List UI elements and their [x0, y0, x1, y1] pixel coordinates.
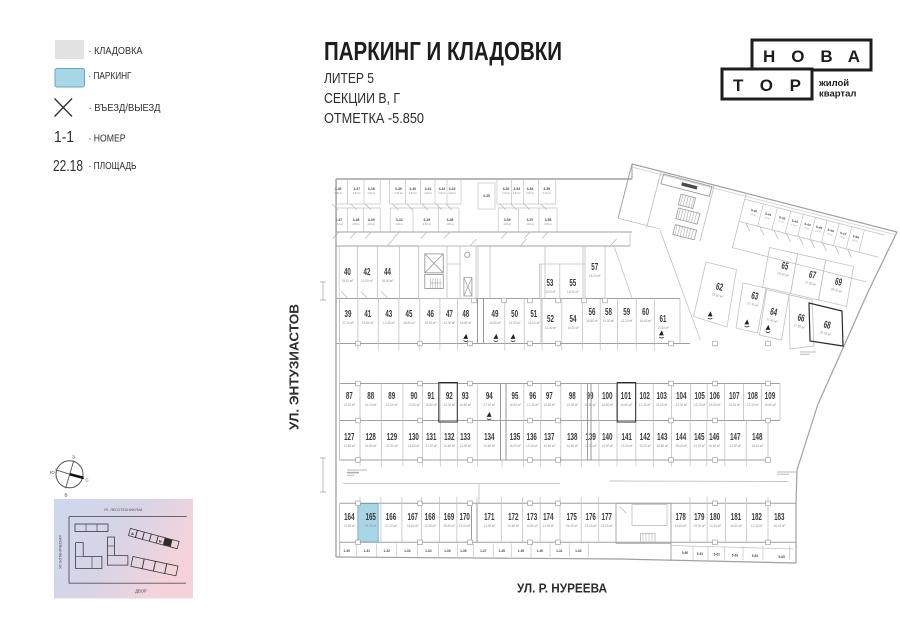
svg-text:15.00 м²: 15.00 м²	[509, 444, 521, 448]
svg-text:3-48: 3-48	[353, 218, 360, 222]
svg-text:1-1: 1-1	[54, 129, 74, 146]
svg-text:180: 180	[710, 512, 721, 523]
svg-text:130: 130	[409, 432, 420, 443]
svg-text:13.30 м²: 13.30 м²	[444, 403, 456, 407]
svg-text:107: 107	[729, 391, 740, 402]
svg-text:52: 52	[547, 314, 554, 325]
svg-text:94: 94	[486, 391, 493, 402]
svg-text:13.30 м²: 13.30 м²	[657, 326, 669, 330]
svg-text:1-33: 1-33	[404, 549, 411, 553]
svg-text:16.80 м²: 16.80 м²	[484, 444, 496, 448]
svg-text:48: 48	[462, 309, 469, 320]
svg-text:128: 128	[366, 432, 377, 443]
svg-text:13.30 м²: 13.30 м²	[730, 444, 742, 448]
svg-text:100: 100	[602, 391, 613, 402]
svg-text:5-63: 5-63	[732, 553, 739, 557]
svg-text:УЛ. Р. НУРЕЕВА: УЛ. Р. НУРЕЕВА	[517, 582, 607, 596]
svg-text:3-55: 3-55	[543, 187, 550, 191]
svg-text:21.00 м²: 21.00 м²	[361, 279, 373, 283]
svg-text:105: 105	[695, 391, 706, 402]
svg-text:15.00 м²: 15.00 м²	[459, 524, 471, 528]
svg-text:4.00 м²: 4.00 м²	[409, 192, 417, 195]
svg-text:39: 39	[345, 309, 352, 320]
svg-text:1-34: 1-34	[425, 549, 432, 553]
svg-text:165: 165	[366, 512, 377, 523]
svg-text:16.80 м²: 16.80 м²	[730, 524, 742, 528]
svg-text:14.80 м²: 14.80 м²	[620, 403, 632, 407]
svg-text:13.50 м²: 13.50 м²	[344, 444, 356, 448]
svg-text:87: 87	[346, 391, 353, 402]
svg-text:16.80 м²: 16.80 м²	[602, 403, 614, 407]
svg-text:3-43: 3-43	[449, 187, 456, 191]
svg-text:177: 177	[602, 512, 613, 523]
svg-text:5-61: 5-61	[697, 552, 704, 556]
svg-text:А: А	[131, 531, 134, 536]
svg-text:102: 102	[640, 391, 651, 402]
svg-text:3-53: 3-53	[513, 187, 520, 191]
svg-text:183: 183	[774, 512, 785, 523]
svg-text:103: 103	[657, 391, 668, 402]
svg-text:16.80 м²: 16.80 м²	[544, 403, 556, 407]
svg-text:13.30 м²: 13.30 м²	[639, 403, 651, 407]
svg-text:167: 167	[408, 512, 419, 523]
svg-text:3-39: 3-39	[395, 187, 402, 191]
svg-text:16.10 м²: 16.10 м²	[752, 444, 764, 448]
svg-text:15.00 м²: 15.00 м²	[386, 403, 398, 407]
svg-text:15.20 м²: 15.20 м²	[567, 326, 579, 330]
svg-text:16.80 м²: 16.80 м²	[544, 444, 556, 448]
svg-text:· КЛАДОВКА: · КЛАДОВКА	[89, 45, 143, 57]
svg-text:13.30 м²: 13.30 м²	[751, 524, 763, 528]
svg-text:13.30 м²: 13.30 м²	[585, 524, 597, 528]
svg-text:13.30 м²: 13.30 м²	[747, 403, 759, 407]
svg-text:166: 166	[386, 512, 397, 523]
svg-text:· ПЛОЩАДЬ: · ПЛОЩАДЬ	[89, 160, 137, 172]
svg-text:Ю: Ю	[50, 470, 55, 475]
svg-text:88: 88	[367, 391, 374, 402]
svg-text:4.00 м²: 4.00 м²	[353, 192, 361, 195]
svg-text:169: 169	[444, 512, 455, 523]
svg-text:14.80 м²: 14.80 м²	[567, 444, 579, 448]
svg-text:ПАРКИНГ И КЛАДОВКИ: ПАРКИНГ И КЛАДОВКИ	[324, 36, 562, 66]
svg-text:15.00 м²: 15.00 м²	[729, 403, 741, 407]
svg-text:93: 93	[462, 391, 469, 402]
svg-text:4.00 м²: 4.00 м²	[367, 223, 375, 226]
svg-text:27.20 м²: 27.20 м²	[342, 321, 354, 325]
svg-text:134: 134	[484, 432, 495, 443]
svg-text:143: 143	[657, 432, 668, 443]
svg-text:З: З	[72, 455, 75, 460]
svg-text:4.00 м²: 4.00 м²	[367, 192, 375, 195]
svg-text:15.00 м²: 15.00 м²	[528, 321, 540, 325]
svg-text:140: 140	[602, 432, 613, 443]
svg-text:89: 89	[388, 391, 395, 402]
svg-text:174: 174	[543, 512, 554, 523]
svg-text:172: 172	[508, 512, 519, 523]
svg-text:4.00 м²: 4.00 м²	[424, 192, 432, 195]
svg-text:51: 51	[530, 309, 537, 320]
svg-text:16.80 м²: 16.80 м²	[443, 524, 455, 528]
svg-text:56: 56	[589, 307, 596, 318]
svg-text:92: 92	[446, 391, 453, 402]
svg-text:15.20 м²: 15.20 м²	[601, 524, 613, 528]
svg-text:1-38: 1-38	[499, 549, 506, 553]
svg-text:13.30 м²: 13.30 м²	[383, 321, 395, 325]
svg-text:15.20 м²: 15.20 м²	[694, 403, 706, 407]
svg-text:45: 45	[406, 309, 413, 320]
svg-text:16.10 м²: 16.10 м²	[774, 524, 786, 528]
svg-text:131: 131	[426, 432, 437, 443]
svg-text:127: 127	[344, 432, 355, 443]
svg-text:49: 49	[492, 309, 499, 320]
svg-text:168: 168	[425, 512, 436, 523]
svg-text:4.00 м²: 4.00 м²	[446, 223, 454, 226]
svg-text:16.80 м²: 16.80 м²	[640, 319, 652, 323]
svg-text:УЛ. БОТАНИЧЕСКАЯ: УЛ. БОТАНИЧЕСКАЯ	[59, 535, 63, 569]
svg-text:3-38: 3-38	[368, 187, 375, 191]
svg-text:175: 175	[567, 512, 578, 523]
svg-text:жилой: жилой	[818, 78, 849, 89]
svg-text:106: 106	[710, 391, 721, 402]
svg-text:14.80 м²: 14.80 м²	[526, 524, 538, 528]
svg-text:14.80 м²: 14.80 м²	[489, 321, 501, 325]
svg-text:15.00 м²: 15.00 м²	[694, 524, 706, 528]
svg-text:176: 176	[586, 512, 597, 523]
svg-text:ДВОР: ДВОР	[135, 589, 147, 594]
svg-text:1-40: 1-40	[537, 549, 544, 553]
svg-text:18.00 м²: 18.00 м²	[589, 274, 601, 278]
svg-text:54: 54	[570, 314, 577, 325]
svg-text:4.00 м²: 4.00 м²	[526, 223, 534, 226]
svg-text:136: 136	[527, 432, 538, 443]
svg-text:13.50 м²: 13.50 м²	[408, 403, 420, 407]
svg-text:13.30 м²: 13.30 м²	[543, 524, 555, 528]
svg-text:4.00 м²: 4.00 м²	[502, 192, 510, 195]
svg-text:18.10 м²: 18.10 м²	[342, 279, 354, 283]
svg-text:15.00 м²: 15.00 м²	[567, 290, 579, 294]
svg-text:1-30: 1-30	[344, 549, 351, 553]
svg-text:15.00 м²: 15.00 м²	[567, 403, 579, 407]
svg-text:4.00 м²: 4.00 м²	[526, 192, 534, 195]
svg-text:13.30 м²: 13.30 м²	[424, 524, 436, 528]
svg-text:16.80 м²: 16.80 м²	[460, 321, 472, 325]
svg-text:15.00 м²: 15.00 м²	[675, 444, 687, 448]
svg-text:16.80 м²: 16.80 м²	[764, 403, 776, 407]
svg-text:148: 148	[752, 432, 763, 443]
svg-text:16.80 м²: 16.80 м²	[403, 321, 415, 325]
svg-text:5-62: 5-62	[714, 553, 721, 557]
svg-text:109: 109	[765, 391, 776, 402]
svg-text:108: 108	[748, 391, 759, 402]
svg-text:101: 101	[621, 391, 632, 402]
svg-text:133: 133	[460, 432, 471, 443]
svg-text:16.80 м²: 16.80 м²	[365, 444, 377, 448]
svg-text:1-31: 1-31	[364, 549, 371, 553]
svg-text:3-35: 3-35	[483, 194, 490, 198]
svg-text:91: 91	[428, 391, 435, 402]
svg-text:96: 96	[529, 391, 536, 402]
svg-text:3-58: 3-58	[545, 218, 552, 222]
svg-text:13.30 м²: 13.30 м²	[694, 444, 706, 448]
svg-text:16.80 м²: 16.80 м²	[508, 524, 520, 528]
svg-text:· НОМЕР: · НОМЕР	[89, 133, 126, 145]
svg-text:145: 145	[694, 432, 705, 443]
svg-text:3-45: 3-45	[423, 218, 430, 222]
svg-text:13.30 м²: 13.30 м²	[344, 524, 356, 528]
svg-text:181: 181	[731, 512, 742, 523]
svg-text:61: 61	[660, 314, 667, 325]
svg-text:98: 98	[569, 391, 576, 402]
svg-text:137: 137	[544, 432, 555, 443]
svg-text:13.30 м²: 13.30 м²	[444, 321, 456, 325]
svg-text:129: 129	[387, 432, 398, 443]
svg-text:3-42: 3-42	[439, 187, 446, 191]
svg-text:27.20 м²: 27.20 м²	[426, 444, 438, 448]
svg-text:40: 40	[344, 267, 351, 278]
svg-text:3-41: 3-41	[425, 187, 432, 191]
svg-text:13.30 м²: 13.30 м²	[584, 403, 596, 407]
svg-text:146: 146	[709, 432, 720, 443]
svg-text:С: С	[85, 478, 88, 483]
svg-text:4.00 м²: 4.00 м²	[438, 192, 446, 195]
svg-text:1-39: 1-39	[518, 549, 525, 553]
svg-text:квартал: квартал	[819, 89, 856, 100]
svg-text:· ПАРКИНГ: · ПАРКИНГ	[89, 70, 132, 82]
svg-text:5-60: 5-60	[682, 551, 689, 555]
svg-text:13.30 м²: 13.30 м²	[484, 524, 496, 528]
svg-text:1-36: 1-36	[460, 549, 467, 553]
svg-text:173: 173	[527, 512, 538, 523]
svg-text:16.80 м²: 16.80 м²	[675, 524, 687, 528]
svg-text:15.00 м²: 15.00 м²	[425, 321, 437, 325]
svg-text:90: 90	[411, 391, 418, 402]
svg-text:95: 95	[512, 391, 519, 402]
svg-text:3-57: 3-57	[527, 218, 534, 222]
svg-text:Б: Б	[159, 538, 162, 543]
svg-text:4.00 м²: 4.00 м²	[503, 223, 511, 226]
svg-text:178: 178	[676, 512, 687, 523]
svg-text:4.00 м²: 4.00 м²	[334, 192, 342, 195]
svg-text:3-54: 3-54	[527, 187, 534, 191]
svg-text:3-37: 3-37	[353, 187, 360, 191]
svg-text:16.80 м²: 16.80 м²	[709, 444, 721, 448]
svg-text:15.00 м²: 15.00 м²	[566, 524, 578, 528]
svg-text:182: 182	[752, 512, 763, 523]
svg-text:16.80 м²: 16.80 м²	[444, 444, 456, 448]
svg-text:16.80 м²: 16.80 м²	[425, 403, 437, 407]
svg-text:97: 97	[546, 391, 553, 402]
svg-text:4.00 м²: 4.00 м²	[395, 223, 403, 226]
svg-text:13.30 м²: 13.30 м²	[621, 319, 633, 323]
svg-text:3-56: 3-56	[504, 218, 511, 222]
svg-text:144: 144	[676, 432, 687, 443]
svg-text:43: 43	[385, 309, 392, 320]
svg-text:· ВЪЕЗД/ВЫЕЗД: · ВЪЕЗД/ВЫЕЗД	[89, 102, 161, 114]
svg-text:4.00 м²: 4.00 м²	[544, 223, 552, 226]
svg-text:1-42: 1-42	[575, 549, 582, 553]
svg-text:147: 147	[730, 432, 741, 443]
svg-text:3-49: 3-49	[368, 218, 375, 222]
svg-text:16.80 м²: 16.80 м²	[657, 444, 669, 448]
svg-text:1-35: 1-35	[444, 549, 451, 553]
svg-text:60: 60	[642, 307, 649, 318]
svg-text:18.30 м²: 18.30 м²	[365, 524, 377, 528]
svg-text:4.00 м²: 4.00 м²	[543, 192, 551, 195]
svg-text:1-41: 1-41	[556, 549, 563, 553]
svg-text:УЛ. ЛЕСОТЕХНИКУМА: УЛ. ЛЕСОТЕХНИКУМА	[104, 508, 143, 512]
svg-text:3-44: 3-44	[396, 218, 403, 222]
svg-text:13.30 м²: 13.30 м²	[545, 326, 557, 330]
svg-text:16.80 м²: 16.80 м²	[408, 444, 420, 448]
svg-text:3-52: 3-52	[503, 187, 510, 191]
svg-text:16.80 м²: 16.80 м²	[509, 403, 521, 407]
svg-text:53: 53	[546, 278, 553, 289]
svg-text:57: 57	[591, 262, 598, 273]
svg-text:59: 59	[623, 307, 630, 318]
svg-text:22.18: 22.18	[53, 158, 83, 175]
svg-text:УЛ. ЭНТУЗИАСТОВ: УЛ. ЭНТУЗИАСТОВ	[288, 304, 302, 430]
svg-text:13.30 м²: 13.30 м²	[526, 444, 538, 448]
svg-text:13.30 м²: 13.30 м²	[621, 444, 633, 448]
svg-text:47: 47	[446, 309, 453, 320]
svg-text:142: 142	[640, 432, 651, 443]
svg-text:13.30 м²: 13.30 м²	[460, 444, 472, 448]
svg-text:13.30 м²: 13.30 м²	[676, 403, 688, 407]
svg-text:15.20 м²: 15.20 м²	[639, 444, 651, 448]
svg-text:4.00 м²: 4.00 м²	[352, 223, 360, 226]
svg-text:171: 171	[484, 512, 495, 523]
svg-text:44: 44	[384, 267, 391, 278]
svg-text:В: В	[65, 493, 68, 498]
svg-text:170: 170	[460, 512, 471, 523]
svg-text:СЕКЦИИ В, Г: СЕКЦИИ В, Г	[324, 90, 400, 107]
svg-text:16.80 м²: 16.80 м²	[709, 403, 721, 407]
svg-text:138: 138	[567, 432, 578, 443]
svg-text:104: 104	[676, 391, 687, 402]
svg-text:13.30 м²: 13.30 м²	[709, 524, 721, 528]
svg-text:132: 132	[444, 432, 455, 443]
svg-text:5-65: 5-65	[779, 555, 786, 559]
svg-text:15.00 м²: 15.00 м²	[603, 319, 615, 323]
svg-text:ОТМЕТКА -5.850: ОТМЕТКА -5.850	[324, 110, 424, 127]
svg-text:135: 135	[510, 432, 521, 443]
svg-text:41: 41	[364, 309, 371, 320]
svg-text:5-64: 5-64	[752, 554, 759, 558]
svg-text:55: 55	[569, 278, 576, 289]
svg-text:3-46: 3-46	[447, 218, 454, 222]
svg-text:58: 58	[605, 307, 612, 318]
svg-text:27.20 м²: 27.20 м²	[385, 524, 397, 528]
svg-text:18.60 м²: 18.60 м²	[382, 279, 394, 283]
svg-text:4.00 м²: 4.00 м²	[513, 192, 521, 195]
svg-text:ЛИТЕР 5: ЛИТЕР 5	[324, 70, 374, 87]
svg-text:16.80 м²: 16.80 м²	[586, 319, 598, 323]
svg-text:164: 164	[344, 512, 355, 523]
svg-text:16.80 м²: 16.80 м²	[407, 524, 419, 528]
svg-text:1-37: 1-37	[480, 549, 487, 553]
svg-text:15.00 м²: 15.00 м²	[544, 290, 556, 294]
svg-text:50: 50	[511, 309, 518, 320]
svg-text:141: 141	[622, 432, 633, 443]
svg-text:27.20 м²: 27.20 м²	[484, 403, 496, 407]
svg-text:13.30 м²: 13.30 м²	[344, 403, 356, 407]
svg-text:3-40: 3-40	[409, 187, 416, 191]
svg-text:1-32: 1-32	[384, 549, 391, 553]
svg-text:16.10 м²: 16.10 м²	[365, 403, 377, 407]
svg-text:15.00 м²: 15.00 м²	[656, 403, 668, 407]
svg-text:15.00 м²: 15.00 м²	[602, 444, 614, 448]
svg-text:179: 179	[694, 512, 705, 523]
svg-text:16.80 м²: 16.80 м²	[362, 321, 374, 325]
svg-text:13.30 м²: 13.30 м²	[527, 403, 539, 407]
svg-text:13.30 м²: 13.30 м²	[509, 321, 521, 325]
svg-text:42: 42	[364, 267, 371, 278]
svg-text:4.00 м²: 4.00 м²	[395, 192, 403, 195]
svg-text:4.00 м²: 4.00 м²	[423, 223, 431, 226]
svg-text:13.30 м²: 13.30 м²	[386, 444, 398, 448]
svg-text:4.00 м²: 4.00 м²	[448, 192, 456, 195]
svg-text:16.80 м²: 16.80 м²	[460, 403, 472, 407]
svg-text:46: 46	[427, 309, 434, 320]
